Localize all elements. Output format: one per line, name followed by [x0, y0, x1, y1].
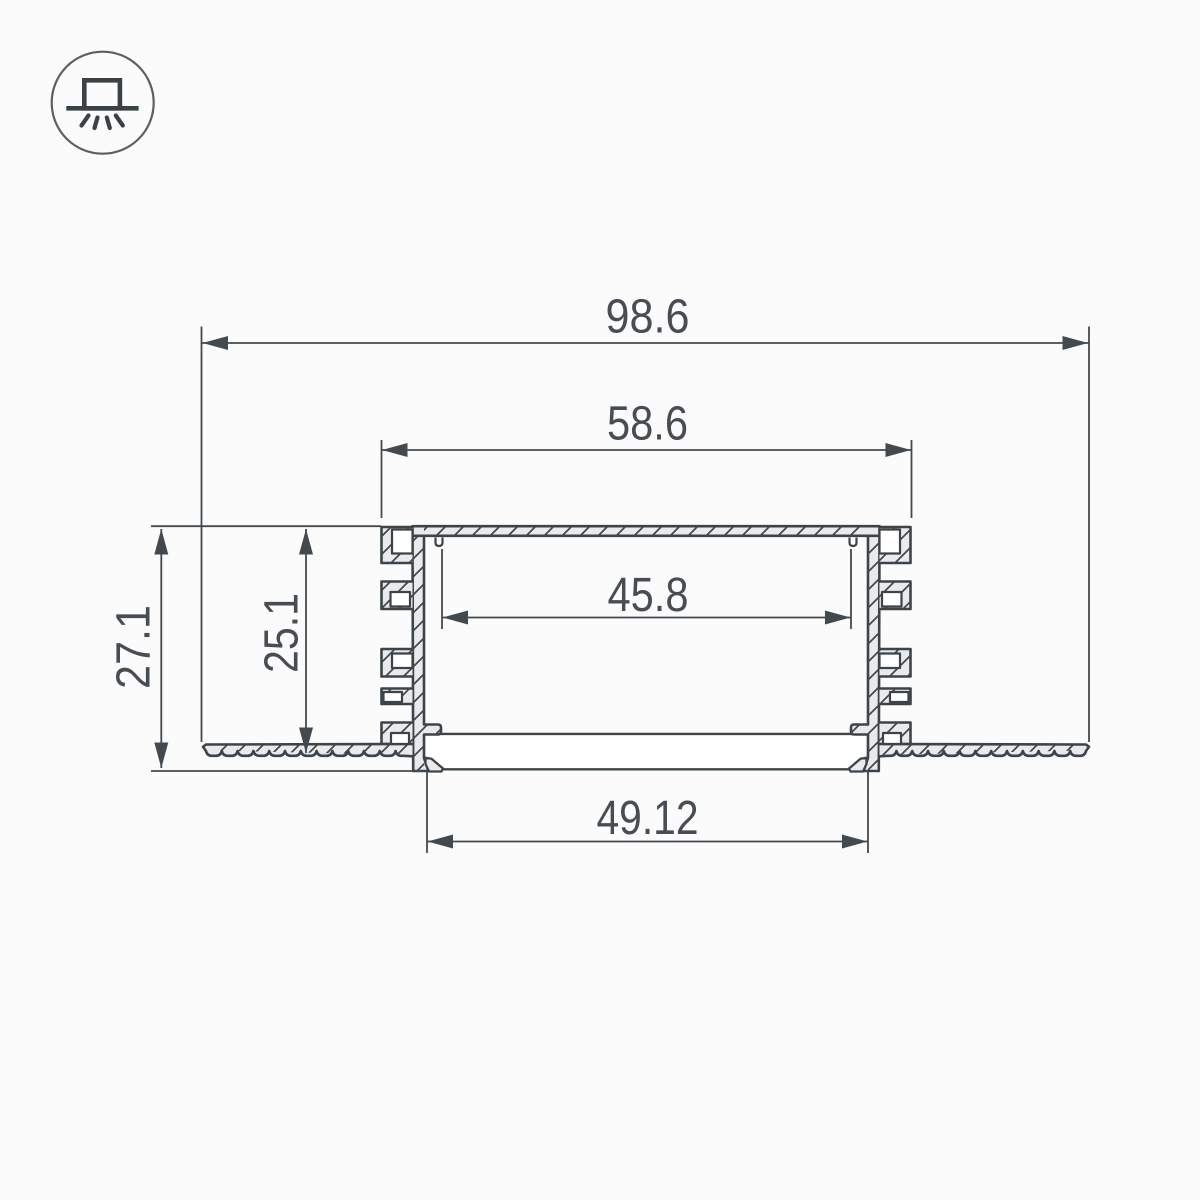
svg-text:25.1: 25.1 [256, 593, 309, 673]
svg-text:58.6: 58.6 [607, 398, 688, 451]
svg-text:45.8: 45.8 [608, 569, 689, 622]
svg-text:49.12: 49.12 [597, 792, 699, 845]
svg-text:27.1: 27.1 [108, 605, 161, 689]
svg-text:98.6: 98.6 [606, 291, 690, 344]
